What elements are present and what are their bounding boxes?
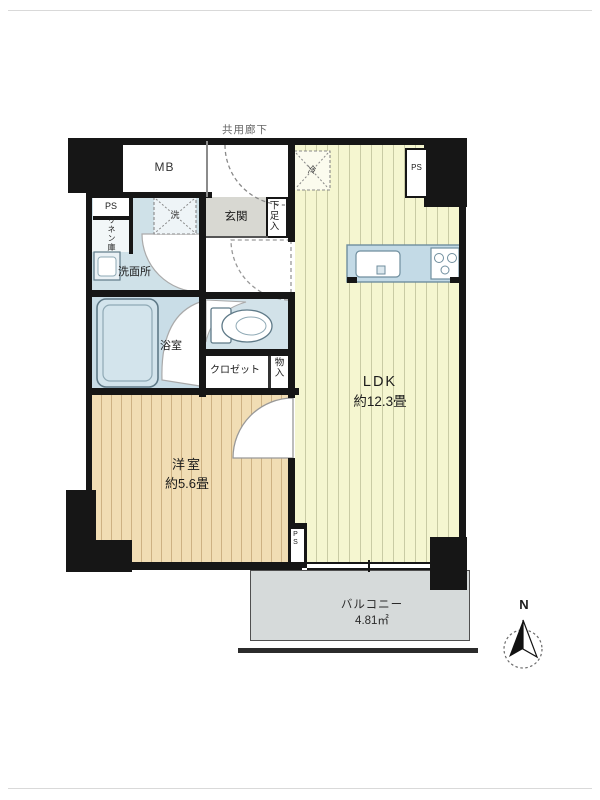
washroom-label: 洗面所 (118, 266, 151, 280)
ps-label-top-right: PS (405, 158, 428, 178)
linen-label: リネン庫 (107, 216, 115, 256)
ps-label-bottom: PS (292, 531, 299, 561)
floor-plan: 共用廊下 MB PS リネン庫 洗 冷 玄関 下足入 洗面所 浴室 クロゼット … (0, 0, 600, 800)
bedroom-door-arc (233, 398, 293, 458)
ldk-name: LDK (320, 374, 440, 390)
ldk-size: 約12.3畳 (320, 390, 440, 410)
bedroom-name: 洋室 (128, 454, 246, 473)
mb-label: MB (123, 143, 206, 192)
wall-ldk-left-mid (288, 298, 295, 398)
window-center-tick (368, 560, 370, 572)
balcony-size: 4.81㎡ (312, 612, 432, 628)
closet-label: クロゼット (200, 358, 270, 384)
wall-toilet-top (199, 292, 295, 299)
wall-toilet-bottom (199, 349, 295, 356)
bathroom-label: 浴室 (160, 340, 182, 354)
mb-partition (206, 141, 208, 197)
toilet-bowl (222, 310, 272, 342)
column-top-right (424, 145, 467, 207)
ldk-door-arc (231, 240, 291, 300)
column-bottom-left (66, 540, 132, 572)
compass-needle-light (523, 620, 537, 657)
balcony-name: バルコニー (312, 596, 432, 612)
washroom-door-arc (142, 234, 200, 292)
bedroom-size: 約5.6畳 (128, 473, 246, 492)
balcony-label-block: バルコニー 4.81㎡ (312, 596, 432, 628)
ldk-label-block: LDK 約12.3畳 (320, 374, 440, 410)
storage-label: 物入 (273, 357, 283, 389)
wall-right (459, 145, 466, 564)
corridor-label: 共用廊下 (222, 124, 268, 137)
fridge-mark: 冷 (294, 151, 330, 190)
bathtub (97, 299, 158, 387)
shoe-box-label: 下足入 (268, 200, 278, 236)
genkan-label: 玄関 (206, 197, 266, 238)
wall-bedroom-top (86, 388, 299, 395)
washer-mark: 洗 (154, 197, 196, 234)
wall-wash-bath (86, 290, 206, 297)
counter-end-cap (347, 277, 357, 283)
ps-label-top-left: PS (93, 197, 129, 216)
column-top-left (68, 140, 123, 193)
entrance-door-arc (225, 145, 285, 205)
bedroom-label-block: 洋室 約5.6畳 (128, 454, 246, 492)
column-bottom-right (430, 537, 467, 590)
washbasin-bowl (98, 257, 116, 276)
compass-needle-dark (509, 620, 523, 657)
north-label: N (511, 597, 537, 613)
kitchen-faucet (377, 266, 385, 274)
